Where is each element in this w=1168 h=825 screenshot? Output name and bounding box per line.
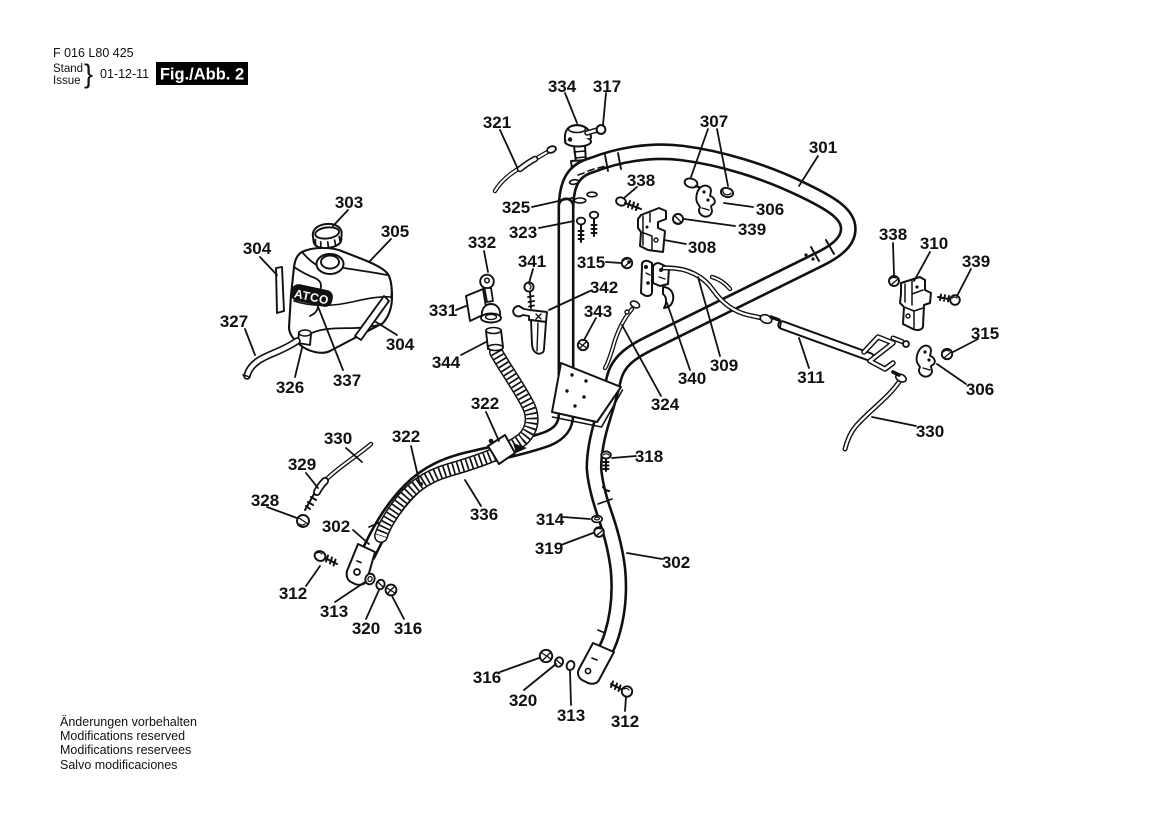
svg-text:304: 304 [386, 335, 415, 354]
svg-text:339: 339 [738, 220, 766, 239]
svg-text:01-12-11: 01-12-11 [100, 67, 149, 81]
svg-text:331: 331 [429, 301, 457, 320]
svg-text:313: 313 [557, 706, 585, 725]
svg-text:330: 330 [324, 429, 352, 448]
svg-text:339: 339 [962, 252, 990, 271]
svg-text:340: 340 [678, 369, 706, 388]
svg-text:332: 332 [468, 233, 496, 252]
svg-text:}: } [84, 59, 93, 89]
svg-text:Modifications reservees: Modifications reservees [60, 743, 191, 757]
svg-text:305: 305 [381, 222, 409, 241]
svg-text:F 016 L80 425: F 016 L80 425 [53, 46, 134, 60]
svg-text:312: 312 [279, 584, 307, 603]
svg-text:302: 302 [322, 517, 350, 536]
svg-text:315: 315 [577, 253, 605, 272]
svg-text:306: 306 [966, 380, 994, 399]
svg-text:316: 316 [473, 668, 501, 687]
svg-text:343: 343 [584, 302, 612, 321]
svg-text:320: 320 [352, 619, 380, 638]
svg-text:321: 321 [483, 113, 511, 132]
svg-text:Salvo modificaciones: Salvo modificaciones [60, 758, 177, 772]
svg-text:344: 344 [432, 353, 461, 372]
svg-text:322: 322 [471, 394, 499, 413]
svg-text:326: 326 [276, 378, 304, 397]
svg-text:315: 315 [971, 324, 999, 343]
svg-text:320: 320 [509, 691, 537, 710]
svg-text:Fig./Abb. 2: Fig./Abb. 2 [160, 66, 244, 84]
svg-text:322: 322 [392, 427, 420, 446]
svg-text:327: 327 [220, 312, 248, 331]
svg-text:330: 330 [916, 422, 944, 441]
svg-text:341: 341 [518, 252, 546, 271]
svg-text:Issue: Issue [53, 75, 81, 87]
svg-text:317: 317 [593, 77, 621, 96]
svg-text:314: 314 [536, 510, 565, 529]
svg-text:313: 313 [320, 602, 348, 621]
svg-text:319: 319 [535, 539, 563, 558]
svg-text:338: 338 [879, 225, 907, 244]
svg-text:308: 308 [688, 238, 716, 257]
svg-text:338: 338 [627, 171, 655, 190]
svg-text:309: 309 [710, 356, 738, 375]
svg-text:337: 337 [333, 371, 361, 390]
svg-text:323: 323 [509, 223, 537, 242]
svg-text:324: 324 [651, 395, 680, 414]
svg-text:334: 334 [548, 77, 577, 96]
svg-text:Stand: Stand [53, 63, 83, 75]
svg-text:328: 328 [251, 491, 279, 510]
svg-text:310: 310 [920, 234, 948, 253]
svg-text:312: 312 [611, 712, 639, 731]
svg-text:336: 336 [470, 505, 498, 524]
svg-text:Modifications reserved: Modifications reserved [60, 729, 185, 743]
svg-text:306: 306 [756, 200, 784, 219]
svg-text:304: 304 [243, 239, 272, 258]
svg-text:307: 307 [700, 112, 728, 131]
svg-text:325: 325 [502, 198, 530, 217]
svg-text:Änderungen vorbehalten: Änderungen vorbehalten [60, 715, 197, 729]
svg-text:342: 342 [590, 278, 618, 297]
svg-text:318: 318 [635, 447, 663, 466]
svg-text:316: 316 [394, 619, 422, 638]
svg-text:311: 311 [797, 368, 824, 387]
svg-text:303: 303 [335, 193, 363, 212]
svg-text:302: 302 [662, 553, 690, 572]
svg-text:301: 301 [809, 138, 837, 157]
svg-text:329: 329 [288, 455, 316, 474]
